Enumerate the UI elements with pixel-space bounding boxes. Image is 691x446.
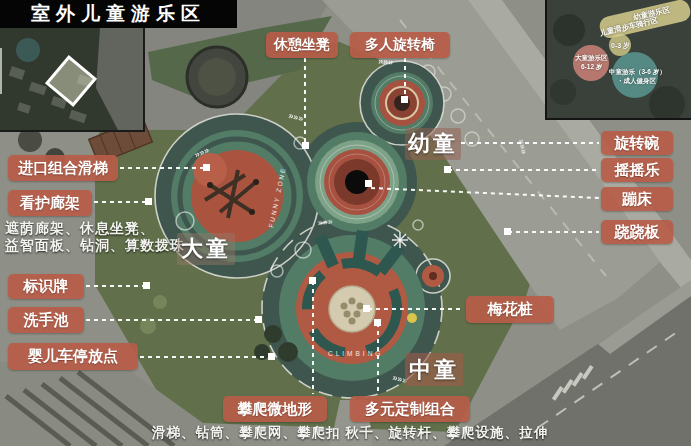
callout-import-slide: 进口组合滑梯 xyxy=(8,155,118,181)
callout-rest-bench: 休憩坐凳 xyxy=(266,32,338,58)
pergola-note-line2: 益智面板、钻洞、算数拨珠 xyxy=(5,237,185,255)
callout-trampoline: 蹦床 xyxy=(601,187,673,211)
inset-teal-sublabel: ・成人健身区 xyxy=(617,77,656,86)
zone-label-toddler: 幼童 xyxy=(405,128,461,160)
custom-combo-note: 秋千、旋转杆、攀爬设施、拉伸 xyxy=(345,424,548,442)
playground-plan-page: FUNNY ZONE xyxy=(0,0,691,446)
site-location-inset xyxy=(0,28,145,132)
callout-seesaw: 跷跷板 xyxy=(601,220,673,244)
callout-signboard: 标识牌 xyxy=(8,274,84,299)
site-location-inset-art xyxy=(0,28,143,130)
inset-pink-age: 6-12 岁 xyxy=(581,63,602,72)
zone-label-middle-child: 中童 xyxy=(405,353,463,386)
zoning-inset: 幼童游乐区 儿童滑步车骑行区 0-3 岁 大童游乐区 6-12 岁 中童游乐（3… xyxy=(545,0,691,120)
callout-wash-basin: 洗手池 xyxy=(8,307,84,333)
callout-spinning-bowl: 旋转碗 xyxy=(601,131,673,155)
inset-teal-label: 中童游乐（3-6 岁） xyxy=(609,68,666,77)
callout-plum-piles: 梅花桩 xyxy=(466,296,554,323)
inset-pink-label: 大童游乐区 xyxy=(575,54,608,63)
zone-label-older-child: 大童 xyxy=(177,233,235,265)
page-title: 室外儿童游乐区 xyxy=(0,0,237,28)
callout-climbing-terrain: 攀爬微地形 xyxy=(223,396,327,422)
inset-band-age: 0-3 岁 xyxy=(611,41,630,51)
climbing-terrain-note: 滑梯、钻筒、攀爬网、攀爬扣 xyxy=(152,424,341,442)
pergola-note-line1: 遮荫廊架、休息坐凳、 xyxy=(5,220,155,238)
callout-custom-combo: 多元定制组合 xyxy=(350,396,470,422)
callout-rocker: 摇摇乐 xyxy=(601,158,673,182)
zoning-inset-art xyxy=(547,0,691,118)
callout-multi-spinner: 多人旋转椅 xyxy=(350,32,450,58)
callout-stroller-parking: 婴儿车停放点 xyxy=(8,343,138,370)
callout-care-pergola: 看护廊架 xyxy=(8,190,92,216)
